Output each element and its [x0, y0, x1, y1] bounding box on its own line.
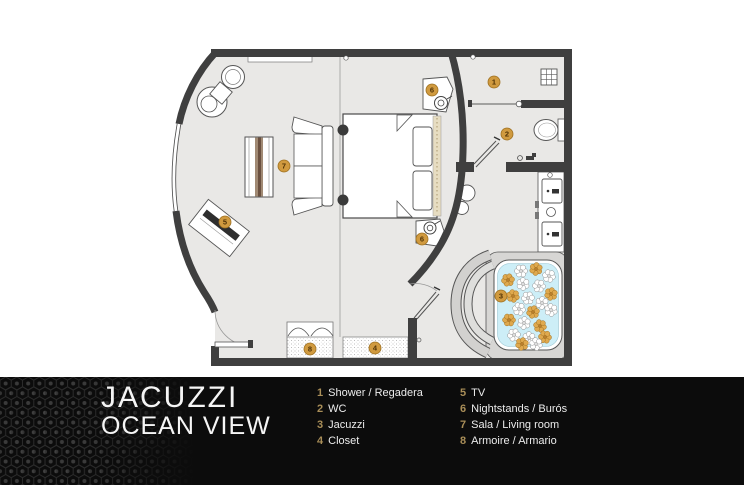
wall-entry-stub [211, 346, 219, 362]
page-title: JACUZZI [101, 383, 271, 413]
marker-nightstand-top: 6 [426, 84, 438, 96]
title-block: JACUZZI OCEAN VIEW [101, 383, 271, 439]
wall-stub-wc [456, 162, 474, 172]
toilet [534, 119, 569, 141]
legend-item-jacuzzi: 3Jacuzzi [317, 417, 423, 433]
floor-plan: 1 2 3 4 5 6 6 7 8 [0, 0, 744, 377]
dining-table [222, 66, 245, 89]
wall-stub-jacuzzi-door [408, 318, 417, 360]
svg-text:1: 1 [492, 78, 496, 87]
wall-top [211, 49, 572, 57]
svg-text:5: 5 [223, 218, 227, 227]
marker-wc: 2 [501, 128, 513, 140]
legend-item-wc: 2WC [317, 401, 423, 417]
legend-item-nightstands: 6Nightstands / Burós [460, 401, 567, 417]
svg-text:6: 6 [420, 235, 424, 244]
bed-post [338, 195, 349, 206]
lamp-icon [424, 222, 436, 234]
legend-column-1: 1Shower / Regadera 2WC 3Jacuzzi 4Closet [317, 385, 423, 449]
svg-text:2: 2 [505, 130, 509, 139]
wall-right [564, 49, 572, 366]
marker-closet: 4 [369, 342, 381, 354]
footer-bar: JACUZZI OCEAN VIEW 1Shower / Regadera 2W… [0, 377, 744, 485]
lamp-icon [435, 97, 448, 110]
page: 1 2 3 4 5 6 6 7 8 [0, 0, 744, 485]
legend-column-2: 5TV 6Nightstands / Burós 7Sala / Living … [460, 385, 567, 449]
floor-plan-svg: 1 2 3 4 5 6 6 7 8 [0, 0, 744, 377]
vanity [535, 172, 564, 252]
pillow [413, 171, 432, 210]
marker-armoire: 8 [304, 343, 316, 355]
marker-tv: 5 [219, 216, 231, 228]
marker-jacuzzi: 3 [495, 290, 507, 302]
marker-nightstand-bottom: 6 [416, 233, 428, 245]
marker-shower: 1 [488, 76, 500, 88]
legend-item-armoire: 8Armoire / Armario [460, 433, 567, 449]
marker-living-room: 7 [278, 160, 290, 172]
svg-text:7: 7 [282, 162, 286, 171]
svg-text:3: 3 [499, 292, 503, 301]
svg-text:6: 6 [430, 86, 434, 95]
pillow [413, 127, 432, 166]
legend-item-shower: 1Shower / Regadera [317, 385, 423, 401]
sofa [292, 117, 333, 215]
bed [338, 114, 442, 218]
svg-text:8: 8 [308, 345, 312, 354]
bed-post [338, 125, 349, 136]
wall-wc-vanity [506, 162, 568, 172]
legend-item-tv: 5TV [460, 385, 567, 401]
legend-item-closet: 4Closet [317, 433, 423, 449]
legend-item-sala: 7Sala / Living room [460, 417, 567, 433]
page-subtitle: OCEAN VIEW [101, 414, 271, 439]
shower-drain [541, 69, 557, 85]
wall-bottom [211, 358, 572, 366]
console-table [245, 137, 273, 197]
wall-shower-seg [521, 100, 566, 108]
